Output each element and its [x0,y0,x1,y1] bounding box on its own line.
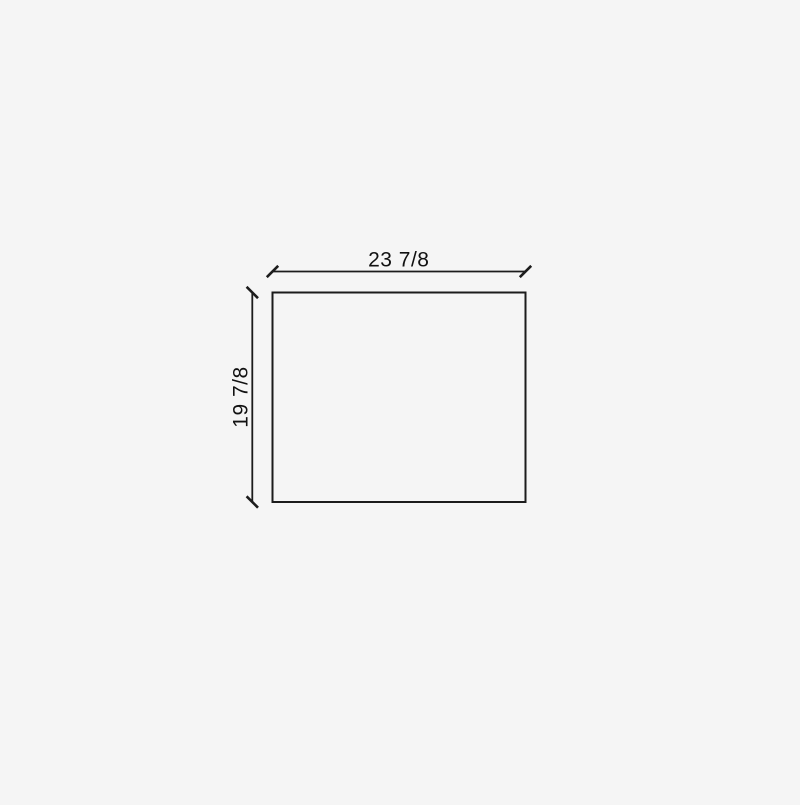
svg-text:19 7/8: 19 7/8 [230,366,253,427]
svg-text:23 7/8: 23 7/8 [368,249,429,272]
